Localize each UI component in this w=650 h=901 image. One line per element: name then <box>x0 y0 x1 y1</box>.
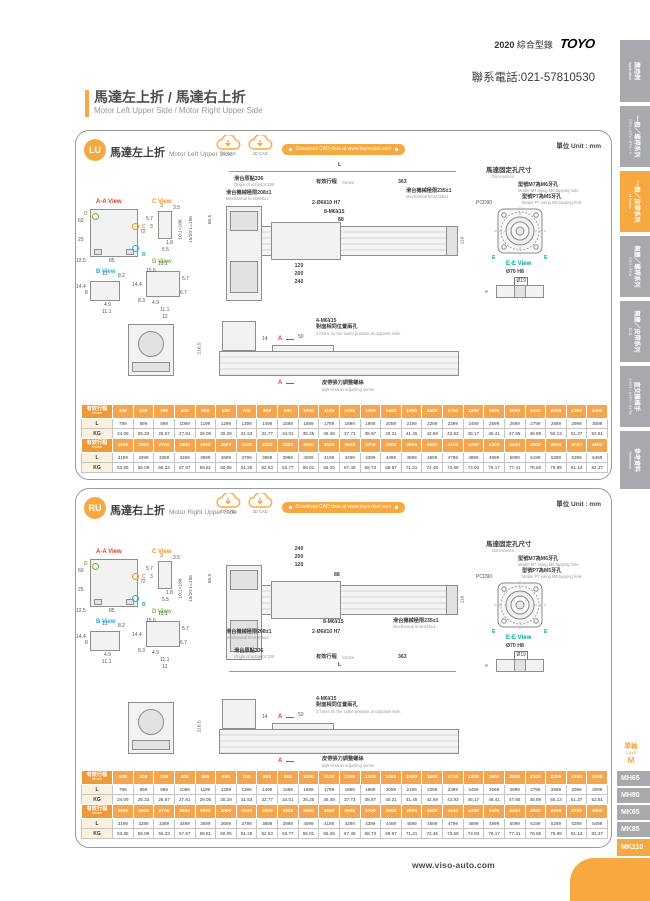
stroke-col-header: 3800 <box>381 439 402 453</box>
stroke-col-header: 400 <box>174 405 195 419</box>
stroke-col-header: 1000 <box>298 771 319 785</box>
weight-cell: 81.13 <box>566 463 587 473</box>
sidebar-tab-clean-belt[interactable]: 無塵／皮帶系列ECB <box>620 301 650 362</box>
stroke-col-header: 1400 <box>381 405 402 419</box>
weight-cell: 82.37 <box>587 829 608 839</box>
d-view-body <box>146 271 180 297</box>
dim-200: 200 <box>289 555 309 561</box>
pill-dot <box>395 506 398 509</box>
carriage-side <box>272 345 334 352</box>
dim-12: 12 <box>162 315 168 321</box>
dim-d70h8: Ø70 H8 <box>506 644 524 650</box>
tab-label-zh: 應用例 <box>633 62 642 80</box>
unit-label: 單位 Unit : mm <box>556 140 601 150</box>
m6-hole-callout: 8-M6¥15 <box>323 620 343 626</box>
gearbox-detail <box>230 261 258 293</box>
stroke-col-header: 800 <box>257 405 278 419</box>
tab-label-en: M Series <box>628 194 632 209</box>
download-cad-banner[interactable]: Download CAD data at www.toyorobot.com <box>282 144 405 155</box>
dim-15-6: 15.6 <box>146 269 156 275</box>
length-cell: 4399 <box>360 819 381 829</box>
stroke-col-header: 4700 <box>566 805 587 819</box>
stroke-col-header: 1500 <box>401 771 422 785</box>
length-cell: 5399 <box>566 453 587 463</box>
section-e-right: E <box>544 255 547 261</box>
stroke-col-header: 3100 <box>236 805 257 819</box>
mech-limit-235-en: Mechanical limit:235±1 <box>393 625 436 630</box>
stroke-col-header: 500 <box>195 771 216 785</box>
length-cell: 1799 <box>319 419 340 429</box>
sidebar-tab-reference[interactable]: 參考資料Reference <box>620 431 650 489</box>
stroke-col-header: 1800 <box>463 405 484 419</box>
sidebar-tab-general-belt-active[interactable]: 一般／皮帶系列M Series <box>620 171 650 232</box>
b-view-body <box>90 281 120 301</box>
length-cell: 1499 <box>257 785 278 795</box>
section-a-bottom: A <box>278 758 282 764</box>
stroke-col-header: 300 <box>154 771 175 785</box>
length-cell: 3799 <box>236 453 257 463</box>
motor-flange-drawing <box>494 207 546 255</box>
ee-section-bore <box>514 285 526 298</box>
stroke-col-header: 4100 <box>443 805 464 819</box>
dim-d70h8: Ø70 H8 <box>506 270 524 276</box>
length-cell: 2599 <box>484 419 505 429</box>
stroke-col-header: 2600 <box>133 805 154 819</box>
weight-cell: 65.01 <box>298 829 319 839</box>
length-cell: 4199 <box>319 453 340 463</box>
stroke-col-header: 2700 <box>154 805 175 819</box>
stroke-col-header: 2200 <box>546 405 567 419</box>
dim-72: 72 <box>140 230 146 236</box>
tab-label-zh: 一般／皮帶系列 <box>633 180 642 222</box>
sidebar-tab-application[interactable]: 應用例Application <box>620 40 650 102</box>
length-cell: 1699 <box>298 785 319 795</box>
weight-cell: 46.41 <box>484 429 505 439</box>
stroke-col-header: 4000 <box>422 805 443 819</box>
weight-cell: 30.29 <box>216 429 237 439</box>
length-cell: 2199 <box>401 785 422 795</box>
p7-tap-en: Model P7 using M5 tapping hole <box>522 575 582 580</box>
stroke-table-2: 有效行程Stroke250026002700280029003000310032… <box>81 804 608 839</box>
stroke-col-header: 600 <box>216 405 237 419</box>
ratio-15-20-1: 15/20:1=196 <box>189 575 194 602</box>
weight-cell: 51.37 <box>566 795 587 805</box>
dim-3-5: 3.5 <box>173 556 180 562</box>
section-e-left: E <box>492 255 495 261</box>
m7-tap-en: Model M7 using M6 tapping hole <box>518 563 579 568</box>
weight-cell: 25.33 <box>133 795 154 805</box>
stroke-col-header: 1200 <box>339 405 360 419</box>
weight-cell: 78.65 <box>525 463 546 473</box>
footer-url[interactable]: www.viso-auto.com <box>412 860 495 870</box>
weight-cell: 52.61 <box>587 429 608 439</box>
length-cell: 4899 <box>463 819 484 829</box>
dim-85: 85 <box>109 609 115 615</box>
dim-4-9: 4.9 <box>104 303 111 309</box>
cloud-download-icon <box>215 493 241 509</box>
length-cell: 4699 <box>422 819 443 829</box>
section-a-arrow <box>286 761 294 762</box>
rail-end-cap <box>446 585 458 615</box>
weight-cell: 51.37 <box>566 429 587 439</box>
dim-1-8: 1.8 <box>166 241 173 247</box>
cloud-download-icon <box>215 135 241 151</box>
motor-detail <box>230 211 258 231</box>
stroke-col-header: 3500 <box>319 439 340 453</box>
dim-1-8: 1.8 <box>166 591 173 597</box>
stroke-col-header: 4000 <box>422 439 443 453</box>
tab-label-en: Reference <box>628 451 632 469</box>
row-label-length: L <box>82 419 113 429</box>
stroke-col-header: 2900 <box>195 439 216 453</box>
weight-cell: 67.49 <box>339 463 360 473</box>
model-tab-mk65[interactable]: MK65 <box>617 805 650 820</box>
carriage-plate <box>271 581 341 619</box>
stroke-col-header: 100 <box>113 771 134 785</box>
weight-cell: 69.97 <box>381 463 402 473</box>
weight-cell: 78.65 <box>525 829 546 839</box>
weight-cell: 66.25 <box>319 829 340 839</box>
dim-200: 200 <box>289 272 309 278</box>
length-cell: 4899 <box>463 453 484 463</box>
dim-88: 88 <box>334 573 340 579</box>
stroke-col-header: 1100 <box>319 771 340 785</box>
catalog-year: 2020 <box>494 40 514 50</box>
ee-section-bore <box>514 659 526 672</box>
model-tab-mh80[interactable]: MH80 <box>617 788 650 803</box>
length-cell: 4499 <box>381 819 402 829</box>
tab-label-zh: 一般／螺桿系列 <box>633 115 642 157</box>
dim-line-L <box>229 671 456 672</box>
weight-cell: 43.93 <box>443 429 464 439</box>
tab-label-en: GCH / ECH <box>628 257 632 277</box>
unit-label: 單位 Unit : mm <box>556 498 601 508</box>
dim-11-1: 11.1 <box>160 308 169 314</box>
weight-cell: 77.41 <box>504 829 525 839</box>
cloud-download-icon <box>247 493 273 509</box>
stroke-col-header: 1300 <box>360 771 381 785</box>
length-cell: 3399 <box>154 819 175 829</box>
model-tab-mk85[interactable]: MK85 <box>617 822 650 837</box>
length-cell: 4099 <box>298 819 319 829</box>
panel-badge-ru: RU <box>84 497 106 519</box>
weight-cell: 82.37 <box>587 463 608 473</box>
toyo-logo: TOYO <box>560 36 596 51</box>
c-view-body <box>158 561 172 589</box>
dim-14-4: 14.4 <box>132 283 142 289</box>
dim-19-1: 19.1 <box>158 612 168 618</box>
download-cad-banner[interactable]: Download CAD data at www.toyorobot.com <box>282 502 405 513</box>
stroke-col-header: 3800 <box>381 805 402 819</box>
dim-5-5: 5.5 <box>162 248 169 254</box>
stroke-col-header: 1100 <box>319 405 340 419</box>
length-cell: 3299 <box>133 819 154 829</box>
sidebar-tab-cartesian[interactable]: 直交機械手XYGT / XYTH / XYTB <box>620 366 650 427</box>
motor-detail <box>230 570 258 590</box>
weight-cell: 40.21 <box>381 429 402 439</box>
dim-240: 240 <box>289 280 309 286</box>
dim-9: 9 <box>485 664 490 667</box>
stroke-col-header: 3000 <box>216 439 237 453</box>
stroke-col-header: 3400 <box>298 805 319 819</box>
length-cell: 1899 <box>339 419 360 429</box>
panel-badge-lu: LU <box>84 139 106 161</box>
dim-8-2: 8.2 <box>118 274 125 280</box>
weight-cell: 73.69 <box>443 829 464 839</box>
stroke-col-header: 1700 <box>443 405 464 419</box>
length-cell: 3499 <box>174 453 195 463</box>
length-cell: 1199 <box>195 419 216 429</box>
stroke-header-cell: 有效行程Stroke <box>82 439 113 453</box>
weight-cell: 73.69 <box>443 463 464 473</box>
belt-tension-en: Belt tension adjusting screw. <box>322 764 375 769</box>
stroke-col-header: 2000 <box>504 771 525 785</box>
stroke-col-header: 2300 <box>566 771 587 785</box>
motor-front-circle <box>138 709 164 735</box>
weight-cell: 58.81 <box>195 829 216 839</box>
weight-cell: 65.01 <box>298 463 319 473</box>
dim-3: 3 <box>160 204 163 210</box>
dim-5-7: 5.7 <box>146 567 153 573</box>
weight-cell: 41.45 <box>401 795 422 805</box>
m7-tap-en: Model M7 using M6 tapping hole <box>518 189 579 194</box>
stroke-col-header: 200 <box>133 405 154 419</box>
sidebar-tab-general-screw[interactable]: 一般／螺桿系列GTH / GTY / ETH / Y <box>620 106 650 167</box>
b-view-body <box>90 631 120 651</box>
dim-12-5: 12.5 <box>76 609 86 615</box>
weight-cell: 79.89 <box>546 829 567 839</box>
length-cell: 1199 <box>195 785 216 795</box>
pill-dot <box>289 148 292 151</box>
weight-cell: 63.77 <box>278 463 299 473</box>
length-cell: 2399 <box>443 419 464 429</box>
pill-dot <box>395 148 398 151</box>
weight-cell: 60.05 <box>216 829 237 839</box>
section-e-left: E <box>492 629 495 635</box>
weight-cell: 66.25 <box>319 463 340 473</box>
dim-72: 72 <box>140 580 146 586</box>
cad-3d-download[interactable]: 3D CAD <box>246 493 274 514</box>
length-cell: 4399 <box>360 453 381 463</box>
stroke-col-header: 2000 <box>504 405 525 419</box>
weight-cell: 48.89 <box>525 795 546 805</box>
length-cell: 2299 <box>422 785 443 795</box>
length-cell: 899 <box>133 419 154 429</box>
weight-cell: 71.21 <box>401 463 422 473</box>
cad-3d-label: 3D CAD <box>246 509 274 514</box>
stroke-col-header: 2100 <box>525 771 546 785</box>
length-cell: 4999 <box>484 819 505 829</box>
stroke-col-header: 700 <box>236 771 257 785</box>
length-cell: 3899 <box>257 453 278 463</box>
stroke-col-header: 1600 <box>422 771 443 785</box>
length-cell: 3299 <box>133 453 154 463</box>
cad-3d-download[interactable]: 3D CAD <box>246 135 274 156</box>
weight-cell: 52.61 <box>587 795 608 805</box>
length-cell: 4999 <box>484 453 505 463</box>
length-cell: 1599 <box>278 785 299 795</box>
weight-cell: 60.05 <box>216 463 237 473</box>
weight-cell: 24.09 <box>113 795 134 805</box>
section-a-top: A <box>278 336 282 342</box>
weight-cell: 26.57 <box>154 795 175 805</box>
dim-9: 9 <box>485 290 490 293</box>
length-cell: 3599 <box>195 819 216 829</box>
panel-motor-right-upper: RU 馬達右上折Motor Right Upper Side 2D CAD 3D… <box>75 488 612 848</box>
tab-label-en: GTH / GTY / ETH / Y <box>628 119 632 154</box>
dim-60: 60 <box>78 569 84 575</box>
weight-cell: 32.77 <box>257 429 278 439</box>
section-a-arrow <box>286 383 294 384</box>
origin-label-en: Origin of actuator:336 <box>234 655 274 660</box>
weight-cell: 61.29 <box>236 463 257 473</box>
stroke-col-header: 3300 <box>278 439 299 453</box>
weight-cell: 37.73 <box>339 429 360 439</box>
stroke-col-header: 2700 <box>154 439 175 453</box>
stroke-table-2: 有效行程Stroke250026002700280029003000310032… <box>81 438 608 473</box>
length-cell: 4199 <box>319 819 340 829</box>
weight-cell: 58.81 <box>195 463 216 473</box>
dim-120: 120 <box>289 563 309 569</box>
weight-cell: 24.09 <box>113 429 134 439</box>
dim-60: 60 <box>78 219 84 225</box>
weight-cell: 63.77 <box>278 829 299 839</box>
sidebar-tab-clean-screw[interactable]: 無塵／螺桿系列GCH / ECH <box>620 236 650 297</box>
stroke-col-header: 1800 <box>463 771 484 785</box>
length-cell: 5099 <box>504 819 525 829</box>
stroke-col-header: 2500 <box>113 439 134 453</box>
length-cell: 1099 <box>174 785 195 795</box>
belt-tension-zh: 皮帶張力調整螺絲 <box>322 757 364 763</box>
weight-cell: 72.45 <box>422 829 443 839</box>
weight-cell: 50.13 <box>546 795 567 805</box>
page-corner-block <box>570 858 650 901</box>
length-cell: 1399 <box>236 419 257 429</box>
length-cell: 2699 <box>504 785 525 795</box>
m4-hole-note-en: 2 holes on the same position at opposite… <box>316 332 401 337</box>
dim-12: 12 <box>162 665 168 671</box>
dim-4-9: 4.9 <box>104 653 111 659</box>
weight-cell: 47.65 <box>504 429 525 439</box>
row-label-length: L <box>82 819 113 829</box>
length-cell: 799 <box>113 785 134 795</box>
stroke-label-en: Stroke <box>342 656 354 661</box>
stroke-col-header: 2300 <box>566 405 587 419</box>
stroke-col-header: 3700 <box>360 805 381 819</box>
length-cell: 3499 <box>174 819 195 829</box>
stroke-col-header: 2800 <box>174 439 195 453</box>
cad-2d-label: 2D CAD <box>214 151 242 156</box>
stroke-col-header: 700 <box>236 405 257 419</box>
dim-12: 12 <box>102 622 108 628</box>
cad-3d-label: 3D CAD <box>246 151 274 156</box>
dim-120: 120 <box>289 264 309 270</box>
weight-cell: 30.29 <box>216 795 237 805</box>
dim-12-5: 12.5 <box>76 259 86 265</box>
pcd90-label: PCD90 <box>476 201 492 207</box>
stroke-col-header: 900 <box>278 771 299 785</box>
weight-cell: 74.93 <box>463 463 484 473</box>
stroke-col-header: 3600 <box>339 439 360 453</box>
weight-cell: 35.25 <box>298 429 319 439</box>
stroke-col-header: 1400 <box>381 771 402 785</box>
origin-label-en: Origin of actuator:336 <box>234 183 274 188</box>
stroke-header-cell: 有效行程Stroke <box>82 805 113 819</box>
stroke-col-header: 1300 <box>360 405 381 419</box>
weight-cell: 68.73 <box>360 463 381 473</box>
length-cell: 4599 <box>401 453 422 463</box>
length-cell: 2399 <box>443 785 464 795</box>
cloud-download-icon <box>247 135 273 151</box>
weight-cell: 79.89 <box>546 463 567 473</box>
weight-cell: 43.93 <box>443 795 464 805</box>
length-cell: 1799 <box>319 785 340 795</box>
length-cell: 2099 <box>381 419 402 429</box>
pill-dot <box>289 506 292 509</box>
row-label-length: L <box>82 453 113 463</box>
cad-2d-download[interactable]: 2D CAD <box>214 135 242 156</box>
section-a-arrow <box>286 717 294 718</box>
weight-cell: 40.21 <box>381 795 402 805</box>
length-cell: 3699 <box>216 819 237 829</box>
stroke-col-header: 1900 <box>484 405 505 419</box>
axis-series: M <box>612 756 650 765</box>
weight-cell: 46.41 <box>484 795 505 805</box>
model-tab-mh65[interactable]: MH65 <box>617 771 650 786</box>
length-cell: 4799 <box>443 453 464 463</box>
stroke-col-header: 4800 <box>587 805 608 819</box>
dim-8: 8 <box>85 641 88 647</box>
d-view-body <box>146 621 180 647</box>
pin-hole-callout: 2-Ø6¥10 H7 <box>312 630 340 636</box>
dim-8-3: 8.3 <box>138 649 145 655</box>
weight-cell: 41.45 <box>401 429 422 439</box>
download-cad-label: Download CAD data at www.toyorobot.com <box>296 144 392 155</box>
stroke-col-header: 2800 <box>174 805 195 819</box>
model-tab-mk110-active[interactable]: MK110 <box>617 839 650 856</box>
cad-2d-download[interactable]: 2D CAD <box>214 493 242 514</box>
stroke-col-header: 3900 <box>401 439 422 453</box>
ratio-10-1: 10:1=188 <box>179 578 184 598</box>
marker-d <box>92 563 99 570</box>
marker-b <box>132 595 139 602</box>
m4-hole-note-zh: 對面相同位置兩孔 <box>316 703 358 709</box>
length-cell: 2499 <box>463 785 484 795</box>
row-label-weight: KG <box>82 429 113 439</box>
marker-b <box>132 245 139 252</box>
length-cell: 5199 <box>525 453 546 463</box>
stroke-col-header: 3300 <box>278 805 299 819</box>
length-cell: 3999 <box>278 453 299 463</box>
length-cell: 3199 <box>113 819 134 829</box>
weight-cell: 55.09 <box>133 829 154 839</box>
length-cell: 2999 <box>566 419 587 429</box>
axis-group-label: 單軸 1 axis M <box>612 743 650 765</box>
length-cell: 3799 <box>236 819 257 829</box>
tab-label-zh: 直交機械手 <box>633 381 642 411</box>
motor-front-base <box>132 362 170 372</box>
dim-65-5: 65.5 <box>208 215 213 224</box>
p7-tap-en: Model P7 using M5 tapping hole <box>522 201 582 206</box>
stroke-col-header: 3500 <box>319 805 340 819</box>
stroke-col-header: 4400 <box>504 805 525 819</box>
weight-cell: 29.05 <box>195 795 216 805</box>
panel-title-zh: 馬達左上折 <box>110 147 165 159</box>
stroke-col-header: 4400 <box>504 439 525 453</box>
stroke-col-header: 800 <box>257 771 278 785</box>
weight-cell: 57.57 <box>174 463 195 473</box>
weight-cell: 76.17 <box>484 463 505 473</box>
